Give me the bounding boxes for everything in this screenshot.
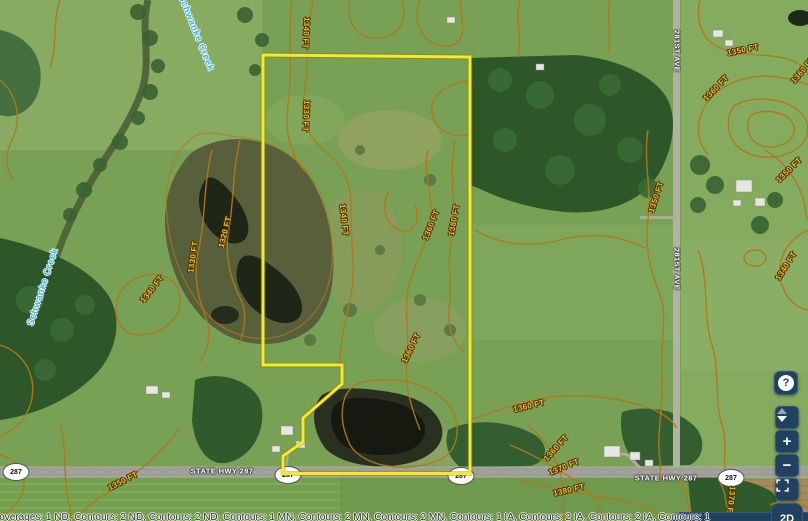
help-button[interactable]: ?: [774, 371, 798, 395]
fullscreen-button[interactable]: [775, 478, 799, 501]
highway-shield-287: 287: [718, 469, 745, 487]
aerial-imagery: [0, 0, 808, 521]
shield-number: 287: [10, 469, 22, 476]
tilt-button[interactable]: [775, 406, 799, 429]
highway-shield-287: 287: [3, 463, 30, 481]
map-canvas[interactable]: Schwanke Creek Schwanke Creek 281ST AVE …: [0, 0, 808, 521]
view-mode-2d-button[interactable]: 2D: [771, 503, 803, 521]
shield-number: 287: [455, 473, 467, 480]
plus-icon: +: [783, 434, 792, 449]
fullscreen-icon: [776, 479, 789, 492]
attribution-text: Coverages: 1 ND, Contours: 2 ND, Contour…: [0, 512, 710, 521]
help-icon: ?: [778, 375, 794, 391]
zoom-in-button[interactable]: +: [775, 430, 799, 453]
shield-number: 287: [282, 472, 294, 479]
highway-shield-287: 287: [275, 466, 302, 484]
view-mode-label: 2D: [780, 513, 794, 521]
zoom-out-button[interactable]: −: [775, 454, 799, 477]
shield-number: 287: [725, 475, 737, 482]
tilt-arrows-icon: [776, 407, 788, 423]
minus-icon: −: [783, 458, 792, 473]
highway-shield-287: 287: [448, 467, 475, 485]
